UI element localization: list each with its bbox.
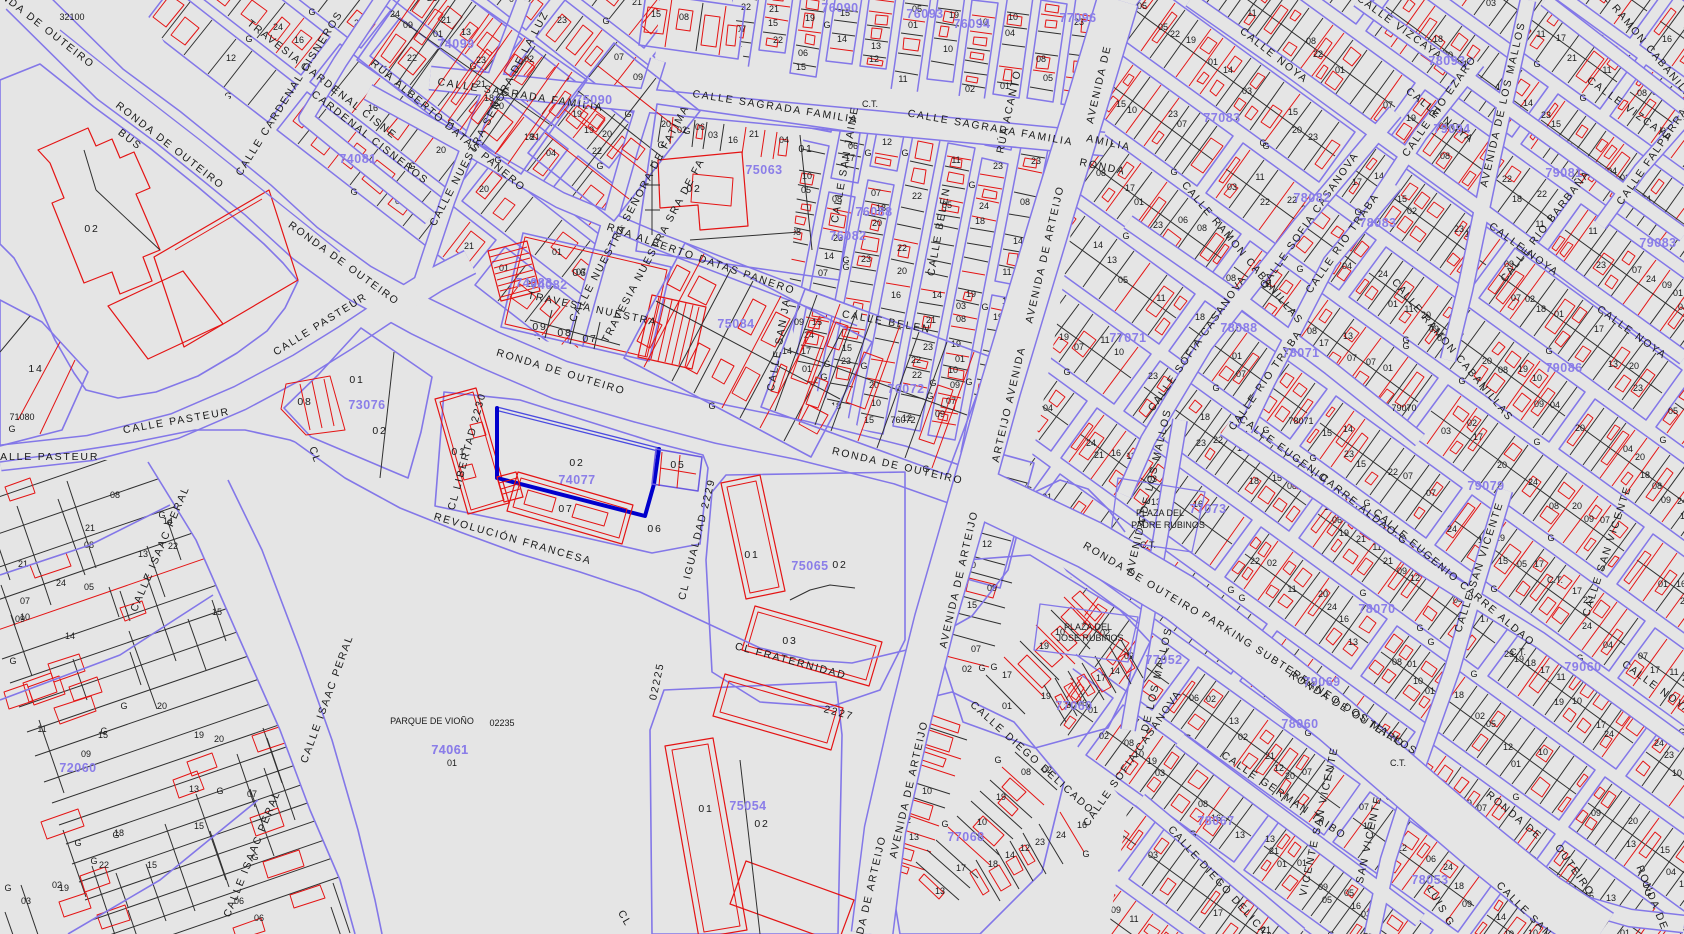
- svg-text:74061: 74061: [431, 743, 468, 757]
- svg-text:13: 13: [1608, 359, 1618, 369]
- svg-text:15: 15: [1356, 459, 1366, 469]
- svg-text:15: 15: [147, 860, 157, 870]
- svg-text:24: 24: [1582, 621, 1592, 631]
- svg-text:11: 11: [1156, 293, 1165, 303]
- svg-text:22: 22: [99, 860, 109, 870]
- svg-text:76072: 76072: [887, 382, 924, 396]
- svg-text:23: 23: [1344, 449, 1354, 459]
- svg-text:15: 15: [1116, 99, 1126, 109]
- svg-text:18: 18: [1526, 658, 1536, 668]
- svg-text:06: 06: [1189, 693, 1199, 703]
- svg-text:C.T.: C.T.: [1390, 758, 1406, 768]
- svg-text:23: 23: [1454, 224, 1464, 234]
- svg-text:07: 07: [871, 188, 881, 198]
- svg-text:08: 08: [297, 396, 312, 408]
- svg-text:18: 18: [1454, 690, 1464, 700]
- svg-text:16: 16: [1111, 448, 1121, 458]
- svg-text:78071: 78071: [1288, 416, 1313, 426]
- svg-text:20: 20: [1285, 771, 1295, 781]
- svg-text:24: 24: [390, 9, 400, 19]
- svg-text:13: 13: [461, 27, 471, 37]
- svg-text:23: 23: [1541, 110, 1551, 120]
- svg-text:02: 02: [1407, 206, 1417, 216]
- svg-text:01: 01: [349, 374, 364, 386]
- svg-text:11: 11: [898, 74, 907, 84]
- svg-text:75090: 75090: [575, 93, 612, 107]
- svg-text:14: 14: [1223, 65, 1233, 75]
- svg-text:78088: 78088: [1220, 321, 1257, 335]
- svg-text:07: 07: [1177, 119, 1187, 129]
- svg-text:17: 17: [1572, 586, 1582, 596]
- svg-text:11: 11: [37, 724, 46, 734]
- svg-text:11: 11: [1536, 29, 1545, 39]
- svg-text:01: 01: [955, 354, 965, 364]
- svg-text:G: G: [216, 786, 223, 796]
- svg-text:G: G: [708, 401, 715, 411]
- svg-text:16: 16: [891, 290, 901, 300]
- svg-text:01: 01: [1673, 288, 1683, 298]
- svg-text:78083: 78083: [1359, 216, 1396, 230]
- svg-text:23: 23: [1035, 837, 1045, 847]
- svg-text:75065: 75065: [791, 559, 828, 573]
- svg-text:77096: 77096: [1059, 11, 1096, 25]
- svg-text:23: 23: [1168, 109, 1178, 119]
- svg-text:07: 07: [1074, 342, 1084, 352]
- svg-text:78071: 78071: [1282, 346, 1319, 360]
- svg-text:G: G: [1082, 849, 1089, 859]
- svg-text:G: G: [1212, 383, 1219, 393]
- svg-text:22: 22: [168, 541, 178, 551]
- svg-text:G: G: [1470, 669, 1477, 679]
- svg-text:01: 01: [908, 20, 918, 30]
- svg-text:17: 17: [1540, 665, 1550, 675]
- svg-text:G: G: [823, 20, 830, 30]
- svg-text:21: 21: [1094, 450, 1104, 460]
- svg-text:11: 11: [1129, 914, 1138, 924]
- svg-text:06: 06: [1178, 215, 1188, 225]
- svg-text:G: G: [1063, 367, 1070, 377]
- svg-text:01: 01: [447, 758, 457, 768]
- svg-text:22: 22: [912, 370, 922, 380]
- svg-text:09: 09: [1397, 566, 1407, 576]
- svg-text:19: 19: [1339, 528, 1349, 538]
- svg-text:12: 12: [882, 137, 892, 147]
- svg-text:G: G: [1227, 585, 1234, 595]
- svg-text:09: 09: [633, 72, 643, 82]
- svg-text:15: 15: [651, 9, 661, 19]
- svg-text:09: 09: [15, 614, 25, 624]
- svg-text:07: 07: [1511, 293, 1521, 303]
- svg-text:24: 24: [56, 578, 66, 588]
- svg-text:05: 05: [1668, 406, 1678, 416]
- svg-text:03: 03: [956, 301, 966, 311]
- svg-text:08: 08: [1197, 223, 1207, 233]
- svg-text:07: 07: [1359, 802, 1369, 812]
- svg-text:01: 01: [798, 143, 813, 155]
- svg-text:01: 01: [1425, 686, 1435, 696]
- svg-text:01: 01: [1658, 579, 1668, 589]
- svg-text:G: G: [8, 424, 15, 434]
- svg-text:10: 10: [948, 365, 958, 375]
- svg-text:14: 14: [1523, 98, 1533, 108]
- svg-text:01: 01: [1554, 309, 1564, 319]
- svg-text:13: 13: [935, 886, 945, 896]
- svg-text:20: 20: [872, 218, 882, 228]
- svg-text:07: 07: [971, 644, 981, 654]
- svg-text:78070: 78070: [1358, 602, 1395, 616]
- svg-text:24: 24: [1447, 524, 1457, 534]
- svg-text:08: 08: [1392, 657, 1402, 667]
- svg-text:15: 15: [1322, 428, 1332, 438]
- svg-text:18: 18: [1433, 34, 1443, 44]
- svg-text:14: 14: [1343, 424, 1353, 434]
- svg-text:23: 23: [1680, 596, 1684, 606]
- svg-text:05: 05: [670, 459, 685, 471]
- svg-text:19: 19: [584, 125, 594, 135]
- svg-text:20: 20: [1572, 501, 1582, 511]
- svg-text:19: 19: [966, 289, 976, 299]
- svg-text:77052: 77052: [1145, 653, 1182, 667]
- svg-text:09: 09: [950, 380, 960, 390]
- svg-text:G: G: [1296, 264, 1303, 274]
- svg-text:12: 12: [1274, 763, 1284, 773]
- svg-text:G: G: [100, 726, 107, 736]
- svg-text:G: G: [1427, 637, 1434, 647]
- svg-text:08: 08: [110, 490, 120, 500]
- svg-text:18: 18: [1249, 476, 1259, 486]
- svg-text:01: 01: [1335, 65, 1345, 75]
- svg-text:05: 05: [1158, 22, 1168, 32]
- svg-text:02: 02: [754, 818, 769, 830]
- svg-text:24: 24: [1528, 477, 1538, 487]
- svg-text:20: 20: [1635, 452, 1645, 462]
- svg-text:G: G: [1259, 138, 1266, 148]
- svg-text:21: 21: [749, 129, 759, 139]
- svg-text:78060: 78060: [1281, 717, 1318, 731]
- svg-text:01: 01: [1383, 363, 1393, 373]
- svg-text:G: G: [1512, 792, 1519, 802]
- svg-text:G: G: [864, 148, 871, 158]
- svg-text:77071: 77071: [1109, 331, 1146, 345]
- svg-text:19: 19: [1554, 697, 1564, 707]
- svg-text:76072: 76072: [890, 415, 915, 425]
- svg-text:G: G: [245, 34, 252, 44]
- svg-text:17: 17: [1125, 183, 1135, 193]
- svg-text:12: 12: [982, 539, 992, 549]
- svg-text:20: 20: [214, 734, 224, 744]
- svg-text:17: 17: [1352, 177, 1362, 187]
- svg-text:14: 14: [824, 251, 834, 261]
- svg-text:16: 16: [728, 135, 738, 145]
- svg-text:02: 02: [1206, 694, 1216, 704]
- svg-text:79081: 79081: [1545, 166, 1582, 180]
- svg-text:G: G: [158, 510, 165, 520]
- svg-text:20: 20: [1482, 356, 1492, 366]
- svg-text:18: 18: [1512, 194, 1522, 204]
- svg-text:21: 21: [464, 241, 474, 251]
- svg-text:01: 01: [552, 247, 562, 257]
- svg-text:02: 02: [832, 559, 847, 571]
- svg-text:G: G: [1416, 623, 1423, 633]
- svg-text:15: 15: [796, 62, 806, 72]
- svg-text:20: 20: [479, 184, 489, 194]
- svg-text:G: G: [1327, 930, 1334, 934]
- svg-text:03: 03: [1148, 850, 1158, 860]
- svg-text:G: G: [981, 302, 988, 312]
- svg-text:02: 02: [569, 457, 584, 469]
- svg-text:17: 17: [956, 863, 966, 873]
- svg-text:01: 01: [744, 549, 759, 561]
- svg-text:11: 11: [1247, 8, 1256, 18]
- svg-text:15: 15: [1397, 194, 1407, 204]
- svg-text:G: G: [9, 656, 16, 666]
- svg-text:73076: 73076: [348, 398, 385, 412]
- svg-text:05: 05: [84, 582, 94, 592]
- svg-text:G: G: [965, 377, 972, 387]
- svg-text:15: 15: [1660, 845, 1670, 855]
- svg-text:24: 24: [273, 22, 283, 32]
- svg-text:23: 23: [1664, 750, 1674, 760]
- svg-text:10: 10: [1672, 768, 1682, 778]
- svg-text:02: 02: [1467, 418, 1477, 428]
- svg-text:15: 15: [1498, 556, 1508, 566]
- svg-text:13: 13: [871, 41, 881, 51]
- svg-text:05: 05: [1137, 1, 1147, 11]
- svg-text:13: 13: [138, 549, 148, 559]
- svg-text:14: 14: [837, 34, 847, 44]
- svg-text:79094: 79094: [1433, 122, 1470, 136]
- svg-text:04: 04: [1043, 403, 1053, 413]
- svg-text:CALLE PASTEUR: CALLE PASTEUR: [0, 451, 99, 463]
- svg-text:24: 24: [1378, 269, 1388, 279]
- svg-text:07: 07: [582, 333, 597, 345]
- svg-text:23: 23: [476, 55, 486, 65]
- svg-text:14: 14: [1005, 850, 1015, 860]
- svg-text:19: 19: [1186, 35, 1196, 45]
- svg-text:23: 23: [1196, 438, 1206, 448]
- svg-text:08: 08: [1306, 36, 1316, 46]
- svg-text:16: 16: [294, 35, 304, 45]
- svg-text:79060: 79060: [1564, 660, 1601, 674]
- svg-text:13: 13: [1235, 830, 1245, 840]
- svg-text:21: 21: [769, 4, 779, 14]
- svg-text:18: 18: [975, 216, 985, 226]
- svg-text:09: 09: [1661, 495, 1671, 505]
- svg-text:21: 21: [1269, 846, 1279, 856]
- svg-text:23: 23: [1596, 260, 1606, 270]
- svg-text:24: 24: [1646, 274, 1656, 284]
- svg-text:23: 23: [841, 356, 851, 366]
- svg-text:07: 07: [1403, 471, 1413, 481]
- svg-text:15: 15: [194, 821, 204, 831]
- svg-text:77060: 77060: [1055, 699, 1092, 713]
- svg-text:09: 09: [1591, 808, 1601, 818]
- svg-text:23: 23: [993, 161, 1003, 171]
- svg-text:03: 03: [1227, 182, 1237, 192]
- svg-text:01: 01: [1388, 299, 1398, 309]
- svg-text:22: 22: [1250, 556, 1260, 566]
- svg-text:17: 17: [1594, 324, 1604, 334]
- svg-text:20: 20: [602, 129, 612, 139]
- svg-text:02: 02: [1267, 558, 1277, 568]
- svg-text:13: 13: [1229, 716, 1239, 726]
- svg-text:08: 08: [1440, 151, 1450, 161]
- svg-text:32100: 32100: [59, 12, 84, 22]
- svg-text:21: 21: [1383, 556, 1393, 566]
- svg-text:09: 09: [1534, 399, 1544, 409]
- svg-text:G: G: [596, 161, 603, 171]
- svg-text:14: 14: [1110, 666, 1120, 676]
- svg-text:02: 02: [1525, 294, 1535, 304]
- svg-text:G: G: [1579, 93, 1586, 103]
- svg-text:05: 05: [1517, 559, 1527, 569]
- svg-text:01: 01: [1620, 928, 1630, 934]
- svg-text:01: 01: [698, 803, 713, 815]
- svg-text:G: G: [1547, 533, 1554, 543]
- svg-text:01: 01: [802, 364, 812, 374]
- svg-text:04: 04: [1623, 444, 1633, 454]
- svg-text:05: 05: [1322, 895, 1332, 905]
- svg-text:02: 02: [372, 425, 387, 437]
- svg-text:20: 20: [1629, 361, 1639, 371]
- svg-text:17: 17: [1002, 670, 1012, 680]
- svg-text:75084: 75084: [717, 317, 754, 331]
- svg-text:13: 13: [1606, 893, 1616, 903]
- svg-text:03: 03: [21, 896, 31, 906]
- svg-text:07: 07: [1302, 767, 1312, 777]
- svg-text:01: 01: [1511, 759, 1521, 769]
- svg-text:79070: 79070: [1391, 403, 1416, 413]
- svg-text:19: 19: [1039, 641, 1049, 651]
- svg-text:04: 04: [546, 148, 556, 158]
- svg-text:05: 05: [1344, 888, 1354, 898]
- svg-text:24: 24: [1677, 496, 1684, 506]
- svg-text:07: 07: [20, 596, 30, 606]
- svg-text:24: 24: [1327, 602, 1337, 612]
- svg-text:04: 04: [1603, 640, 1613, 650]
- svg-text:22: 22: [773, 35, 783, 45]
- svg-text:17: 17: [1213, 908, 1223, 918]
- svg-text:13: 13: [1348, 637, 1358, 647]
- svg-text:07: 07: [558, 503, 573, 515]
- svg-text:72060: 72060: [59, 761, 96, 775]
- svg-text:11: 11: [1669, 667, 1678, 677]
- svg-text:74099: 74099: [437, 37, 474, 51]
- svg-text:03: 03: [1441, 426, 1451, 436]
- svg-text:18: 18: [1640, 470, 1650, 480]
- svg-text:07: 07: [1632, 265, 1642, 275]
- svg-text:13: 13: [1626, 839, 1636, 849]
- svg-text:09: 09: [1584, 514, 1594, 524]
- svg-text:19: 19: [1041, 691, 1051, 701]
- svg-text:22: 22: [911, 355, 921, 365]
- svg-text:12: 12: [1020, 843, 1030, 853]
- svg-text:G: G: [994, 755, 1001, 765]
- svg-text:14: 14: [65, 631, 75, 641]
- svg-text:PARQUE DE VIOÑO: PARQUE DE VIOÑO: [390, 716, 474, 726]
- svg-text:18: 18: [1536, 304, 1546, 314]
- svg-text:17: 17: [1473, 432, 1483, 442]
- svg-text:79083: 79083: [1639, 236, 1676, 250]
- svg-text:11: 11: [1588, 226, 1597, 236]
- svg-text:08: 08: [1549, 501, 1559, 511]
- svg-text:09: 09: [1111, 905, 1121, 915]
- svg-text:09: 09: [403, 20, 413, 30]
- svg-text:G: G: [941, 819, 948, 829]
- svg-text:14: 14: [1496, 912, 1506, 922]
- svg-text:G: G: [1533, 59, 1540, 69]
- svg-text:PLAZA DEL: PLAZA DEL: [1136, 508, 1184, 518]
- svg-text:23: 23: [1153, 220, 1163, 230]
- svg-text:23: 23: [1308, 132, 1318, 142]
- svg-text:22: 22: [1313, 49, 1323, 59]
- svg-text:02: 02: [965, 84, 975, 94]
- svg-text:78093: 78093: [1428, 54, 1465, 68]
- svg-text:09: 09: [794, 317, 804, 327]
- svg-text:19: 19: [805, 13, 815, 23]
- svg-text:G: G: [602, 16, 609, 26]
- svg-text:15: 15: [967, 600, 977, 610]
- svg-text:11: 11: [1287, 584, 1296, 594]
- svg-text:10: 10: [1413, 676, 1423, 686]
- svg-text:18: 18: [1454, 881, 1464, 891]
- svg-text:01: 01: [1134, 197, 1144, 207]
- svg-text:14: 14: [28, 363, 43, 375]
- svg-text:10: 10: [1679, 879, 1684, 889]
- svg-text:21: 21: [632, 0, 642, 7]
- svg-text:76090: 76090: [821, 1, 858, 15]
- svg-text:C.T.: C.T.: [1140, 540, 1156, 550]
- svg-text:21: 21: [441, 15, 451, 25]
- svg-text:05: 05: [1043, 73, 1053, 83]
- svg-text:20: 20: [1318, 589, 1328, 599]
- svg-text:G: G: [120, 701, 127, 711]
- svg-text:G: G: [74, 838, 81, 848]
- svg-text:11: 11: [951, 155, 960, 165]
- svg-text:05: 05: [1118, 275, 1128, 285]
- svg-text:G: G: [1238, 593, 1245, 603]
- svg-text:C.T.: C.T.: [1510, 647, 1526, 657]
- svg-text:10: 10: [943, 44, 953, 54]
- svg-text:23: 23: [923, 342, 933, 352]
- svg-text:15: 15: [212, 607, 222, 617]
- svg-text:18: 18: [988, 859, 998, 869]
- svg-text:75063: 75063: [745, 163, 782, 177]
- svg-text:G: G: [842, 262, 849, 272]
- svg-text:76094: 76094: [953, 17, 990, 31]
- svg-text:01: 01: [1277, 859, 1287, 869]
- svg-text:21: 21: [1567, 53, 1577, 63]
- svg-text:G: G: [1545, 346, 1552, 356]
- svg-text:G: G: [1170, 167, 1177, 177]
- svg-text:07: 07: [614, 52, 624, 62]
- svg-text:06: 06: [572, 267, 587, 279]
- svg-text:04: 04: [779, 135, 789, 145]
- svg-text:15: 15: [1288, 107, 1298, 117]
- svg-text:06: 06: [647, 523, 662, 535]
- svg-text:02: 02: [962, 664, 972, 674]
- svg-text:15: 15: [1551, 119, 1561, 129]
- svg-text:21: 21: [85, 523, 95, 533]
- svg-text:22: 22: [1388, 467, 1398, 477]
- svg-text:G: G: [990, 662, 997, 672]
- svg-text:G: G: [1402, 341, 1409, 351]
- svg-text:13: 13: [1107, 255, 1117, 265]
- svg-text:76093: 76093: [906, 7, 943, 21]
- svg-text:79086: 79086: [1545, 361, 1582, 375]
- svg-text:08: 08: [1036, 54, 1046, 64]
- svg-text:78053: 78053: [1411, 873, 1448, 887]
